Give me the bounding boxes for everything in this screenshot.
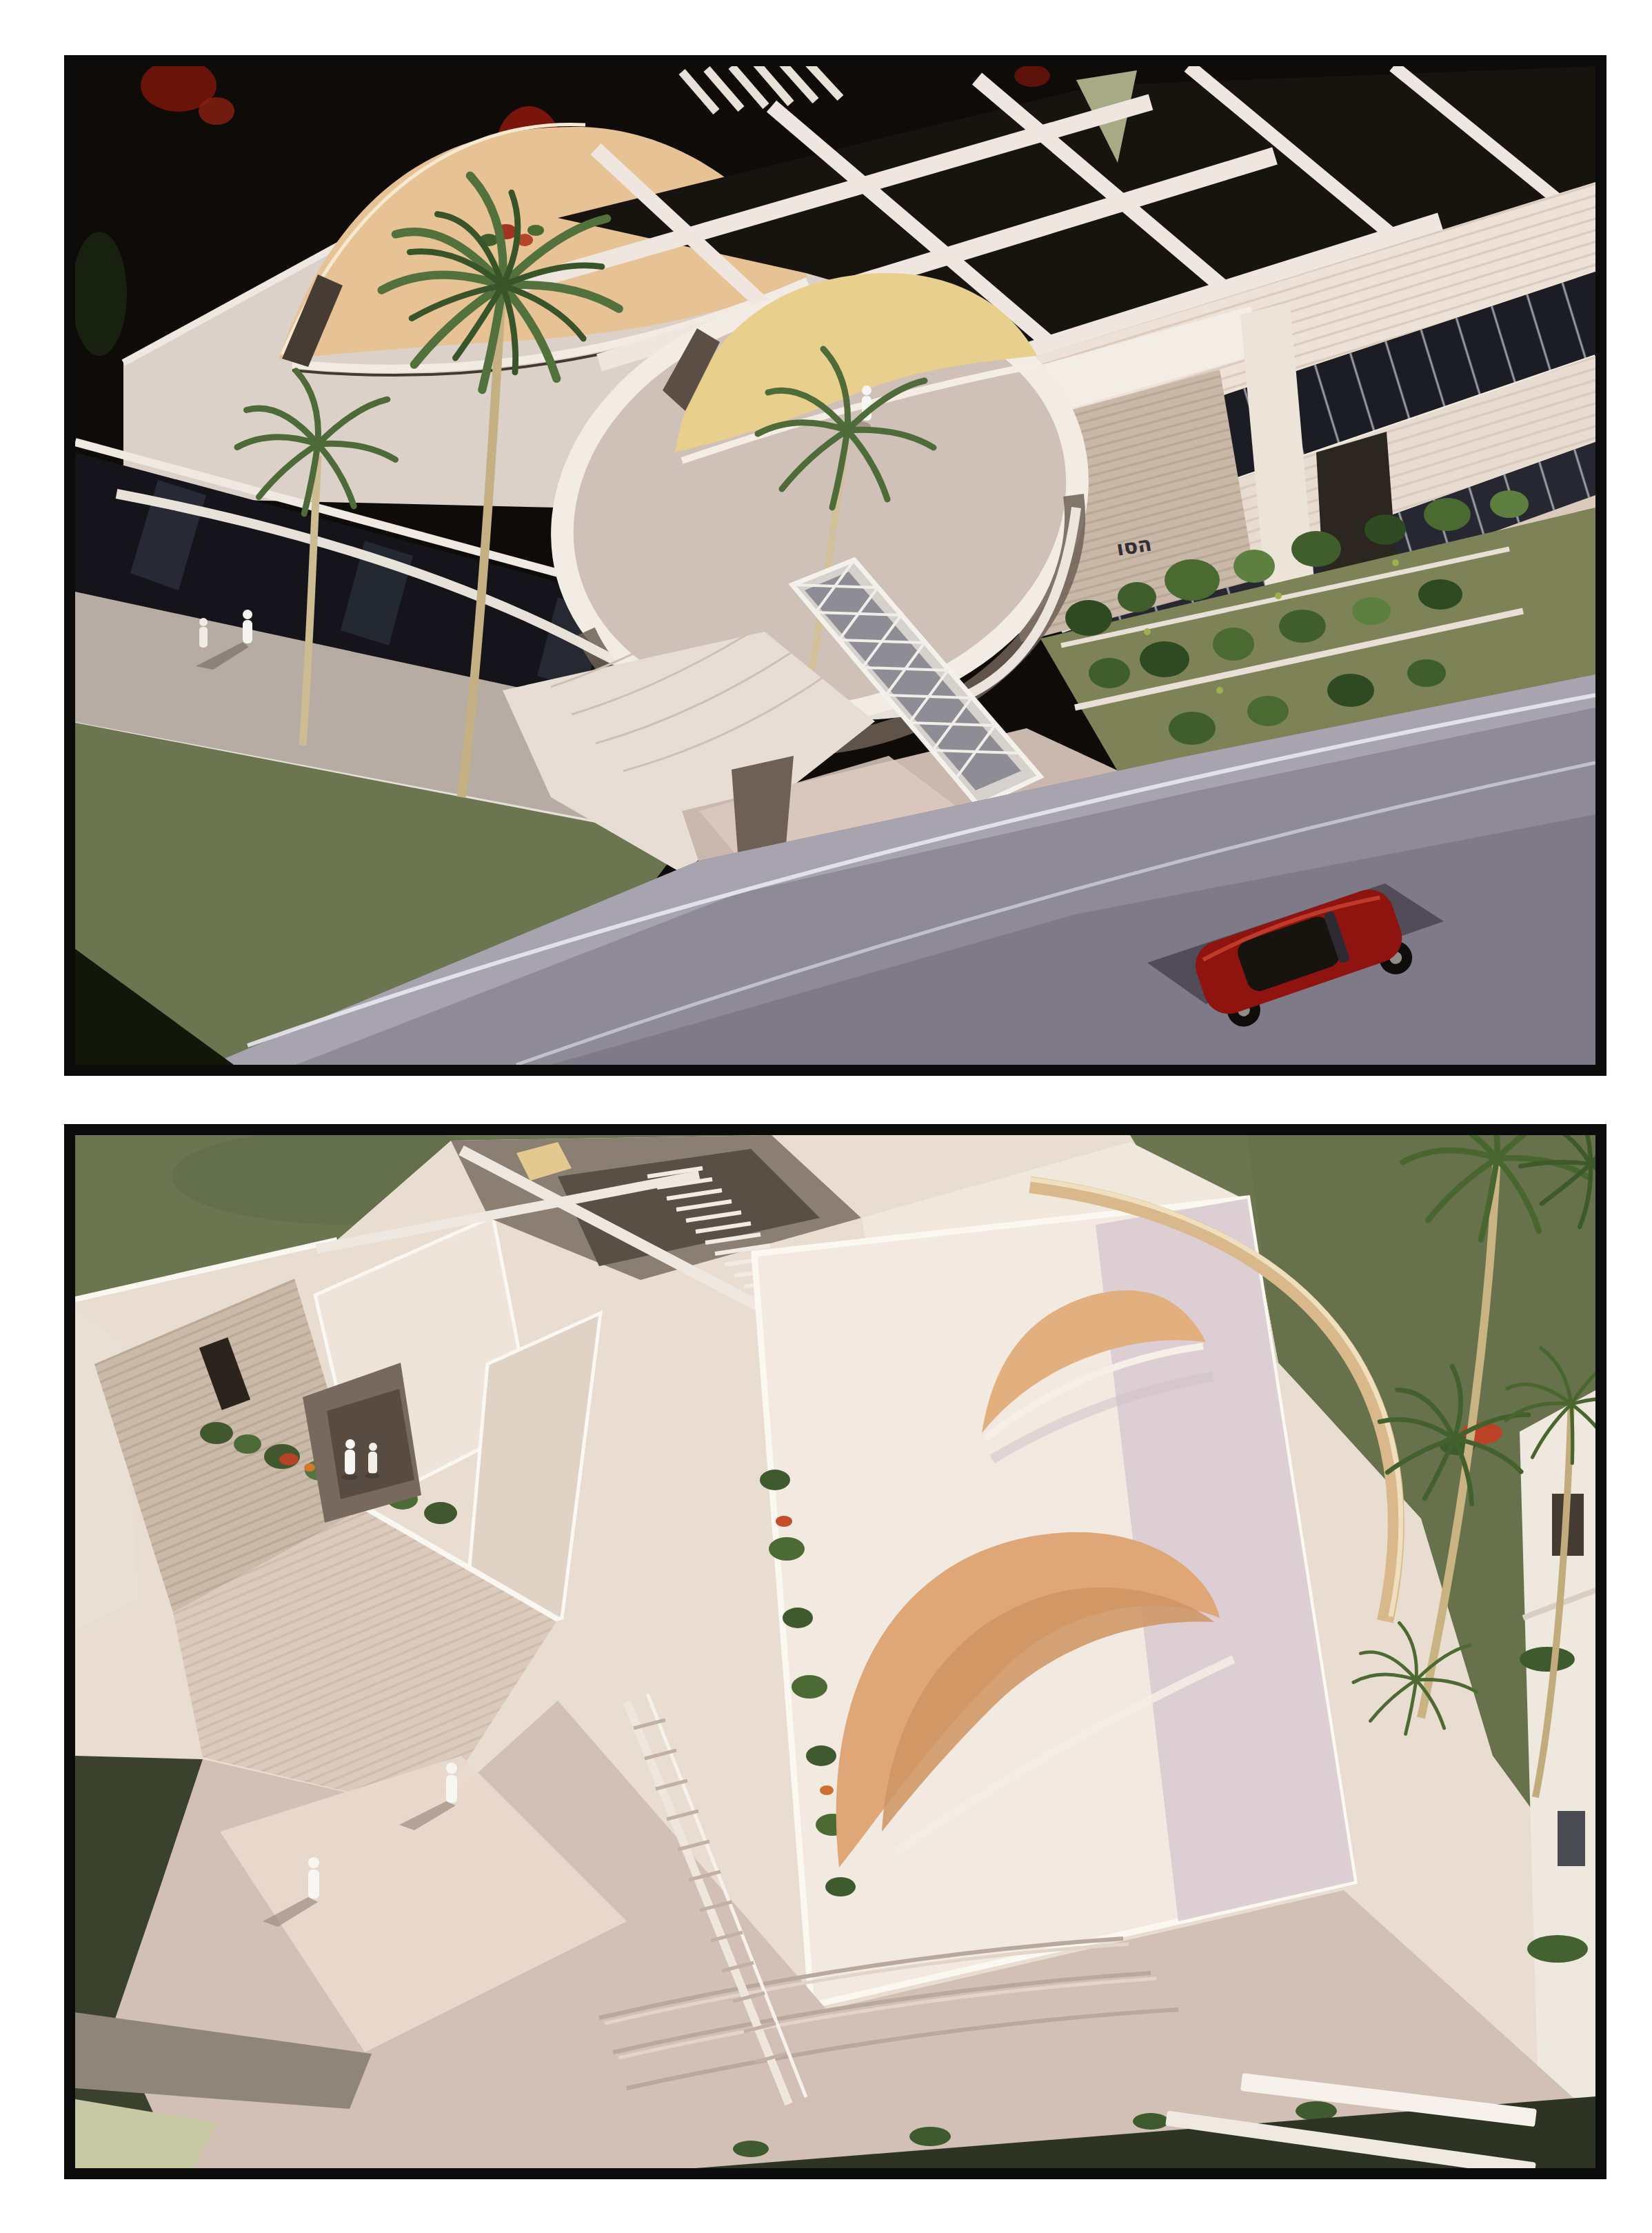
framed-photo-courtyard-view [64,1124,1606,2179]
framed-photo-street-view: הסו [64,55,1606,1076]
terrace-figure [862,385,872,395]
roof-deck [754,1199,1354,2005]
planter-flowers-red [279,1453,299,1465]
photo-image-street-view: הסו [75,66,1595,1065]
photo-image-courtyard-view [75,1135,1595,2168]
photo-board-page: הסו [0,0,1652,2233]
